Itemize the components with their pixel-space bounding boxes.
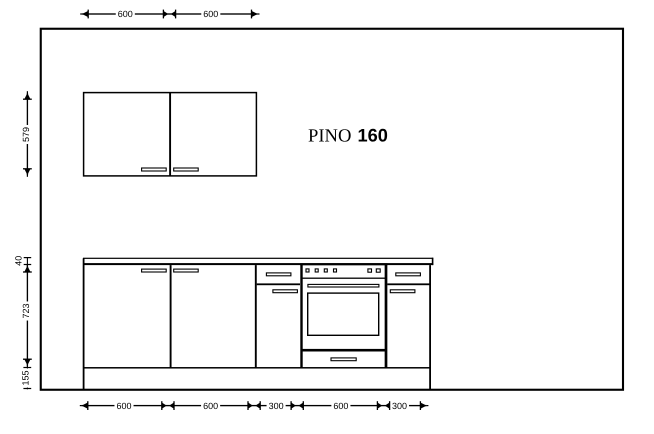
svg-text:723: 723 [21,303,31,318]
svg-text:PINO: PINO [308,125,351,146]
svg-text:579: 579 [21,127,31,142]
svg-text:600: 600 [118,9,133,19]
svg-text:600: 600 [116,401,131,411]
svg-text:155: 155 [21,370,31,385]
svg-text:160: 160 [358,125,388,145]
svg-text:300: 300 [392,401,407,411]
svg-text:600: 600 [203,401,218,411]
svg-text:600: 600 [203,9,218,19]
svg-text:300: 300 [269,401,284,411]
svg-text:40: 40 [13,256,23,266]
svg-text:600: 600 [333,401,348,411]
